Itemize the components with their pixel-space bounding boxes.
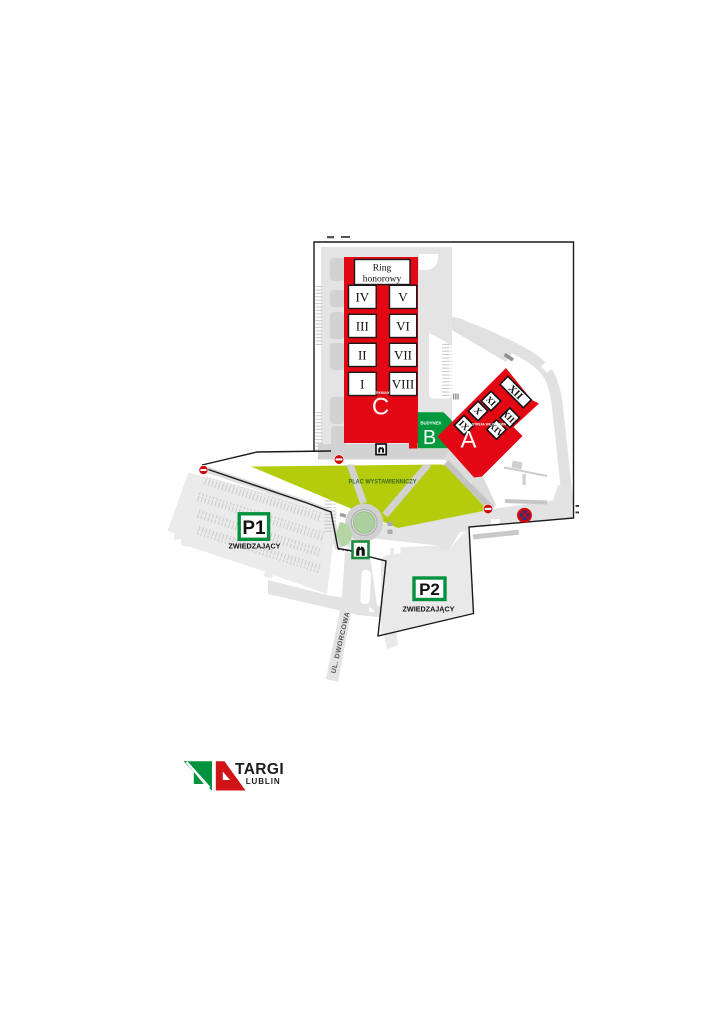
svg-text:P2: P2 <box>419 580 440 599</box>
svg-text:I: I <box>360 377 364 392</box>
svg-text:IV: IV <box>355 290 369 305</box>
svg-text:LUBLIN: LUBLIN <box>246 777 281 786</box>
svg-text:B: B <box>423 427 436 449</box>
svg-text:P1: P1 <box>242 518 266 539</box>
svg-text:III: III <box>356 319 369 334</box>
svg-text:VII: VII <box>394 348 412 363</box>
svg-text:ZWIEDZAJĄCY: ZWIEDZAJĄCY <box>403 605 455 614</box>
svg-text:VIII: VIII <box>392 377 414 392</box>
svg-text:VI: VI <box>396 319 410 334</box>
svg-text:C: C <box>372 394 389 421</box>
svg-text:II: II <box>358 348 367 363</box>
svg-text:BUDYNEK: BUDYNEK <box>420 421 442 426</box>
svg-text:STREFA WEJSCIOWA: STREFA WEJSCIOWA <box>472 423 507 427</box>
svg-text:PLAC WYSTAWIENNICZY: PLAC WYSTAWIENNICZY <box>349 479 418 486</box>
svg-text:ZWIEDZAJĄCY: ZWIEDZAJĄCY <box>229 542 281 551</box>
svg-text:honorowy: honorowy <box>363 275 402 285</box>
svg-text:TARGI: TARGI <box>235 761 284 778</box>
svg-text:Ring: Ring <box>373 264 392 274</box>
svg-text:V: V <box>398 290 408 305</box>
svg-text:A: A <box>460 427 476 454</box>
